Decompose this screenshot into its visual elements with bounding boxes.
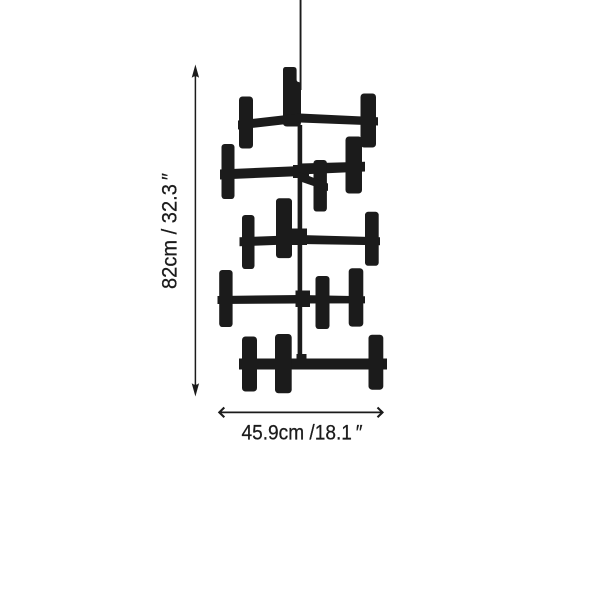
svg-text:82cm / 32.3 ″: 82cm / 32.3 ″ xyxy=(157,173,182,289)
svg-text:45.9cm /18.1 ″: 45.9cm /18.1 ″ xyxy=(242,420,363,445)
